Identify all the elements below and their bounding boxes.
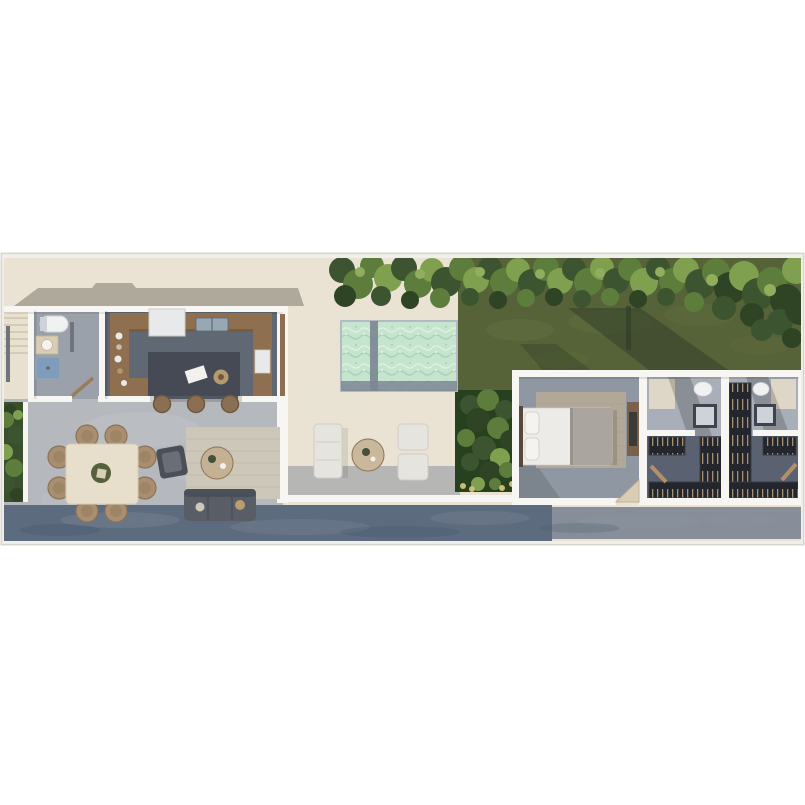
wall [99,306,105,402]
foliage-leaf-cluster [461,288,479,306]
kitchen-counter-return [110,378,151,396]
suite-toilet [753,383,769,396]
foliage-leaf-cluster [355,267,365,277]
wall [639,498,805,505]
dining-chair-cushion [81,430,93,442]
street-patch [430,511,530,525]
dresser-front [629,412,637,446]
centerpiece-tray [96,468,106,478]
garden-leaf [466,408,490,432]
coffee-table-dish [220,463,226,469]
foliage-leaf-cluster [706,274,718,286]
dining-chair-cushion [110,505,122,517]
bar-stool [222,396,239,413]
pool-water [341,321,457,391]
wall [753,430,798,436]
closet-shelf-side [729,383,751,498]
suite-2 [729,377,798,498]
planter-leaf [13,410,23,420]
suite-vanity-top [696,407,714,425]
foliage-leaf-cluster [764,284,776,296]
suite-toilet [694,382,712,396]
pool-deep-edge [341,381,457,391]
sofa-throw-pillow [235,500,245,510]
planter-edge-wall [23,402,28,502]
pool [341,321,457,391]
range-stove [149,309,185,336]
wall [639,370,647,505]
planter-leaf [5,459,23,477]
sofa-back [184,489,256,497]
outdoor-table-dish [371,457,376,462]
wall [647,430,695,436]
bar-stool [154,396,171,413]
counter-dish [121,380,127,386]
foliage-leaf-cluster [334,285,356,307]
counter-dish [116,333,123,340]
outdoor-armchair [398,424,428,450]
bed-headboard [519,406,523,467]
garden-flower [469,486,475,492]
wall-shadow [105,311,108,399]
vanity-sink [42,340,53,351]
planter-leaf [10,488,24,502]
wall [4,306,288,312]
garden-leaf [457,429,475,447]
wall [512,498,616,505]
foliage-leaf-cluster [517,289,535,307]
towel-rail [70,322,74,352]
dining-chair-cushion [139,482,151,494]
coffee-table-plant [208,455,216,463]
closet-rail [649,437,685,455]
foliage-leaf-cluster [657,288,675,306]
wall [721,370,729,505]
stair-railing [6,326,10,382]
dining-chair-cushion [81,505,93,517]
closet-shelf-bottom [649,482,722,498]
pool-divider [370,321,378,391]
terrace-glass-door [280,314,285,396]
shower-drain [46,366,50,370]
armchair-seat [161,451,182,474]
street-patch [540,523,620,533]
outdoor-armchair [398,454,428,480]
street-patch [700,514,780,526]
closet-shelf-bottom [729,482,798,498]
wall [512,370,519,505]
kitchen-counter-top [110,313,272,331]
grass-patch [486,319,554,341]
counter-dish [116,344,122,350]
foliage-leaf-cluster [655,267,665,277]
wall [512,370,805,377]
floor-plan-svg [0,0,805,805]
foliage-leaf-cluster [545,288,563,306]
foliage-leaf-cluster [401,291,419,309]
foliage-leaf-cluster [601,288,619,306]
garden-flower [499,485,505,491]
bar-stool [188,396,205,413]
dining-chair-cushion [110,430,122,442]
coffee-table [201,447,233,479]
garden-leaf [461,453,479,471]
toilet-tank [40,317,47,331]
foliage-leaf-cluster [430,288,450,308]
counter-edge [110,329,272,332]
dining-chair-cushion [53,451,65,463]
planter-leaf [7,426,25,444]
counter-dish [117,324,122,329]
sofa-throw-pillow [196,503,205,512]
counter-dish [117,368,123,374]
wall-shadow [519,377,799,379]
foliage-leaf-cluster [489,291,507,309]
dining-chair-cushion [139,451,151,463]
bed-fold [570,408,573,465]
bed-shadow [612,410,617,465]
garden-flower [460,483,466,489]
sofa-shadow [342,428,348,478]
closet-rail [763,437,796,455]
dining-chair-cushion [53,482,65,494]
terrace-low-wall [283,495,523,502]
floor-plan-rendering [0,0,805,805]
bed-blanket [572,408,612,465]
foliage-leaf-cluster [475,267,485,277]
suite-vanity-top [757,407,773,423]
foliage-leaf-cluster [629,290,647,308]
foliage-leaf-cluster [535,269,545,279]
foliage-leaf-cluster [595,268,605,278]
island-bowl-center [218,374,224,380]
street-patch [340,526,460,538]
dishwasher [255,350,270,373]
suite-1 [647,377,722,498]
foliage-leaf-cluster [415,269,425,279]
tree-trunk-shadow [626,306,631,350]
bedroom [519,377,640,498]
street-patch [20,524,100,536]
outdoor-table-plant [362,448,370,456]
foliage-leaf-cluster [684,292,704,312]
bed-pillow [525,438,539,460]
wall-shadow [34,311,37,399]
counter-dish [115,356,122,363]
foliage-leaf-cluster [751,319,773,341]
wall [28,306,34,402]
foliage-leaf-cluster [712,296,736,320]
foliage-leaf-cluster [782,328,802,348]
plan-content [0,254,805,541]
bar-stools [154,396,239,413]
foliage-leaf-cluster [573,290,591,308]
wall [238,396,283,402]
outdoor-sofa [314,424,342,478]
bed-pillow [525,412,539,434]
floor-patch [80,412,200,448]
foliage-leaf-cluster [371,286,391,306]
